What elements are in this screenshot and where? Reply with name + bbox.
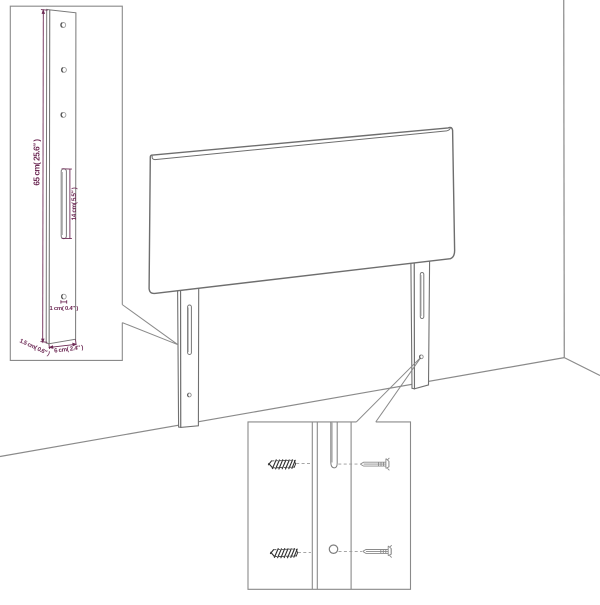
svg-text:14 cm( 5.5″ ): 14 cm( 5.5″ ) (71, 187, 78, 220)
svg-text:1 cm( 0.4″ ): 1 cm( 0.4″ ) (49, 306, 78, 312)
svg-text:65 cm( 25.6″ ): 65 cm( 25.6″ ) (32, 139, 41, 186)
